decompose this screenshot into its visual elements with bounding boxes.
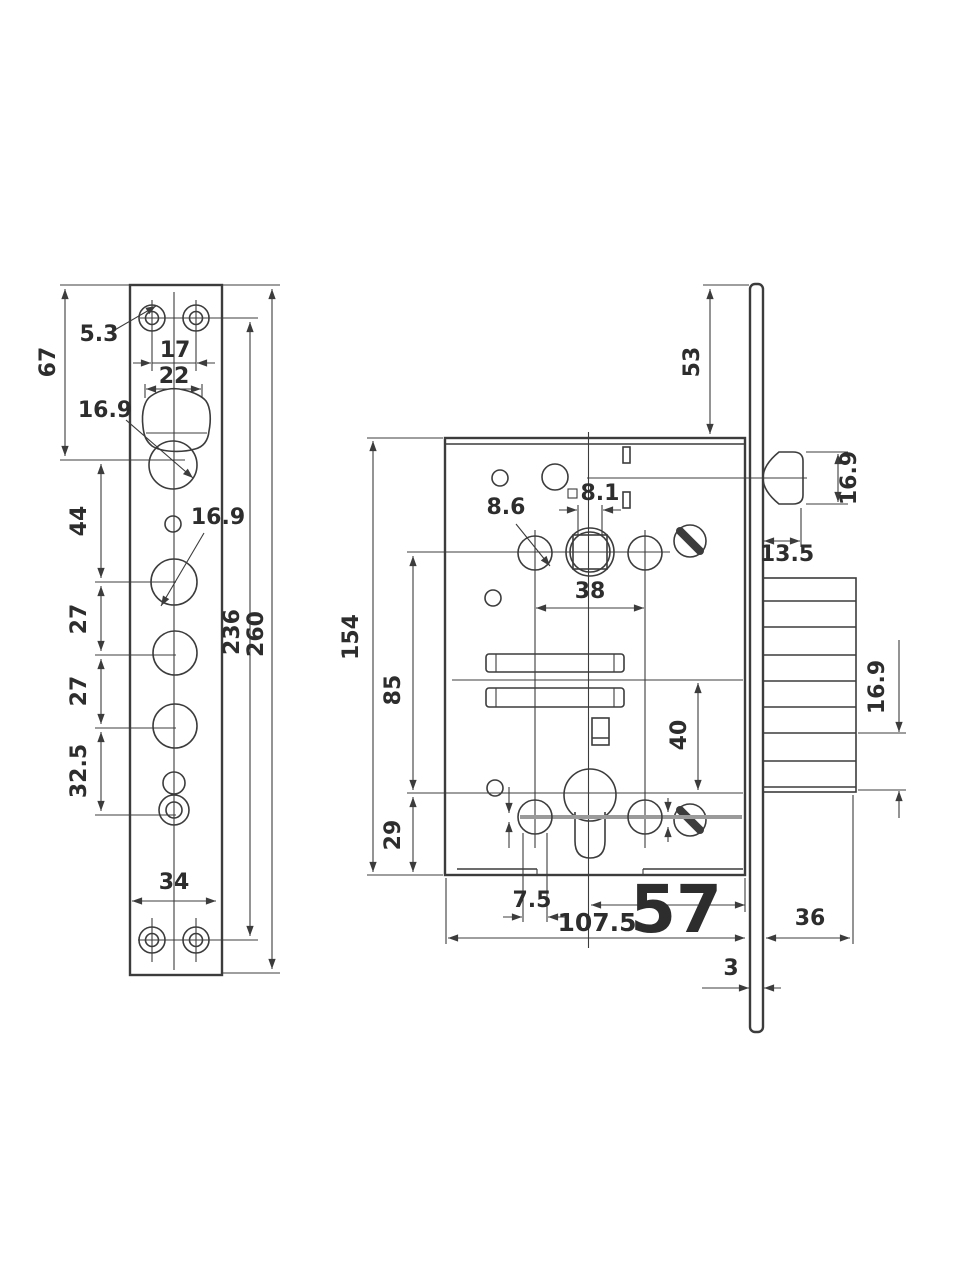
handle-slot-1 — [486, 654, 624, 672]
dim-hole-spacing: 38 — [575, 579, 606, 604]
dim-latch-depth: 13.5 — [760, 542, 814, 567]
dim-hub-to-cylinder: 32.5 — [67, 744, 92, 798]
dim-hole-dia: 8.6 — [487, 495, 526, 520]
dim-cyl-to-bottom: 29 — [381, 820, 406, 851]
dim-top-height: 67 — [36, 347, 61, 378]
latch-hole — [149, 441, 197, 489]
dim-plate-height: 260 — [244, 611, 269, 657]
faceplate-edge — [750, 284, 763, 1032]
cylinder-hole — [564, 769, 616, 821]
dim-hub-hole-dia: 16.9 — [191, 505, 245, 530]
drawing-canvas: 5.3 17 22 67 16.9 16.9 44 27 27 32.5 34 … — [0, 0, 960, 1280]
dim-latch-height: 16.9 — [837, 451, 862, 505]
dim-plate-above-case: 53 — [680, 347, 705, 378]
dim-latch-hole-dia: 16.9 — [78, 398, 132, 423]
dim-plate-thickness: 3 — [723, 956, 738, 981]
dim-screw-hole-dia: 5.3 — [80, 322, 119, 347]
dim-spindle-to-cyl: 85 — [381, 675, 406, 706]
dim-screw-centers: 236 — [220, 609, 245, 655]
dim-hub-spacing-1: 27 — [67, 604, 92, 635]
dim-plate-width: 34 — [159, 870, 190, 895]
handle-slot-2 — [486, 688, 624, 707]
dim-slot-to-cyl: 40 — [667, 720, 692, 751]
hub-hole-3 — [153, 704, 197, 748]
dim-latch-cutout: 22 — [159, 364, 190, 389]
dim-backset: 57 — [630, 871, 722, 948]
dim-offset: 7.5 — [513, 888, 552, 913]
dim-case-depth: 107.5 — [557, 908, 636, 937]
dim-screw-spacing: 17 — [160, 338, 191, 363]
dim-hub-spacing-2: 27 — [67, 676, 92, 707]
dim-latch-to-hub: 44 — [67, 506, 92, 537]
hub-hole-2 — [153, 631, 197, 675]
side-view-dimensions: 53 16.9 13.5 154 8.6 8.1 38 85 29 40 16.… — [339, 285, 906, 988]
dim-case-height: 154 — [339, 614, 364, 660]
dim-bolt-width: 36 — [795, 906, 826, 931]
deadbolt — [763, 578, 856, 792]
front-view-dimensions: 5.3 17 22 67 16.9 16.9 44 27 27 32.5 34 … — [36, 285, 280, 973]
dim-bolt-step: 16.9 — [865, 660, 890, 714]
dim-spindle-square: 8.1 — [581, 481, 620, 506]
mortise-lock-technical-drawing: 5.3 17 22 67 16.9 16.9 44 27 27 32.5 34 … — [0, 0, 960, 1280]
